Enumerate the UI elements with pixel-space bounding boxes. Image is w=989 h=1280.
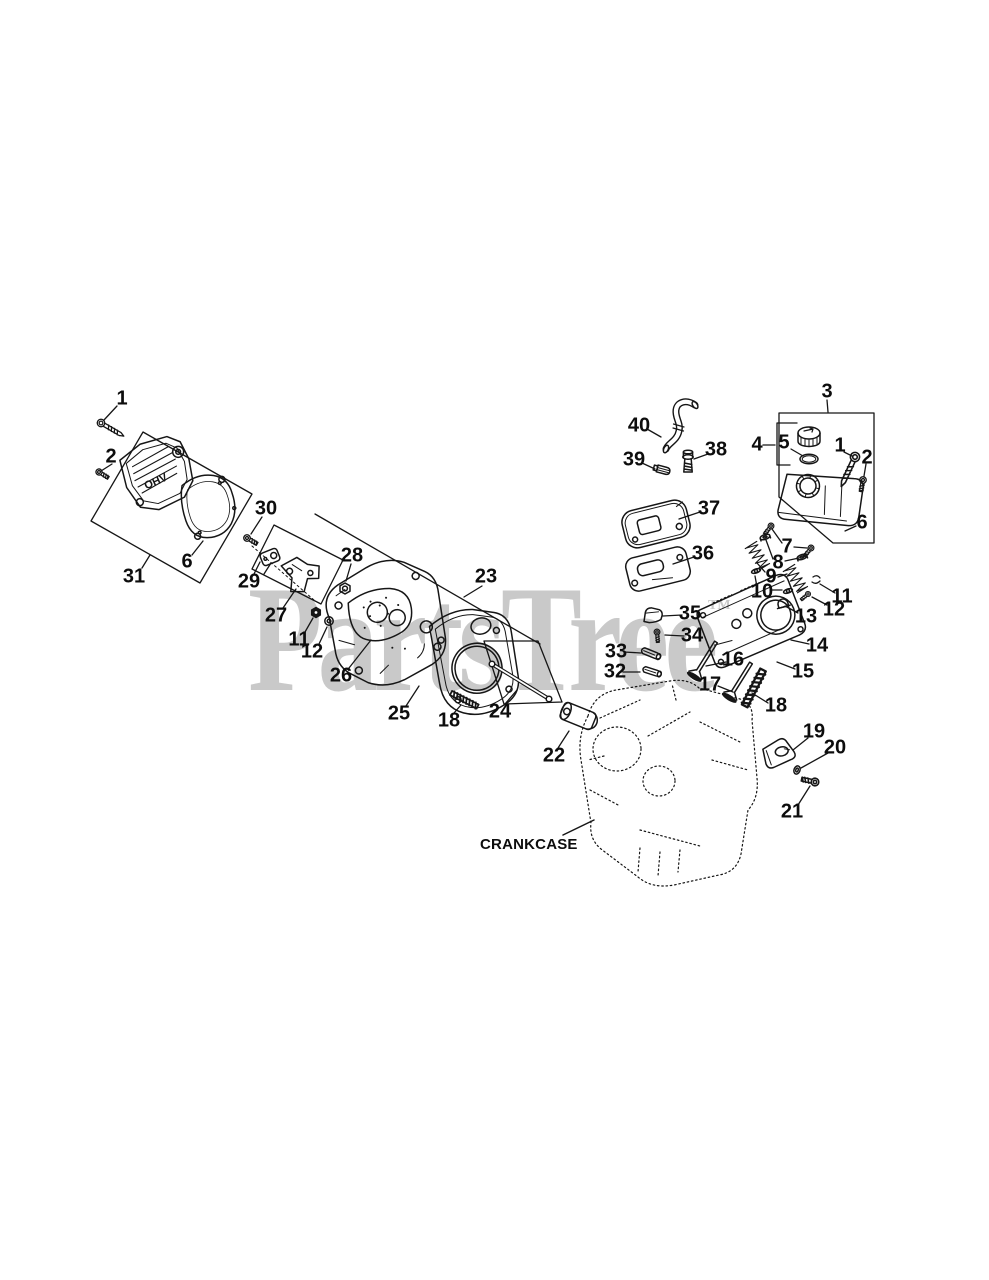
part-callout-18: 18 [438,710,460,733]
part-callout-13: 13 [795,606,817,629]
part-callout-24: 24 [489,701,511,724]
part-callout-10: 10 [751,581,773,604]
part-callout-26: 26 [330,665,352,688]
part-callout-36: 36 [692,543,714,566]
part-callout-25: 25 [388,703,410,726]
part-callout-3: 3 [821,381,832,404]
callout-labels: 1231630292728111226232518242240393834512… [0,0,989,1280]
part-callout-2: 2 [861,447,872,470]
part-callout-35: 35 [679,603,701,626]
part-callout-40: 40 [628,415,650,438]
part-callout-32: 32 [604,661,626,684]
part-callout-16: 16 [722,649,744,672]
part-callout-33: 33 [605,641,627,664]
part-callout-17: 17 [699,674,721,697]
part-callout-38: 38 [705,439,727,462]
part-callout-18: 18 [765,695,787,718]
part-callout-6: 6 [181,551,192,574]
part-callout-39: 39 [623,449,645,472]
part-callout-23: 23 [475,566,497,589]
part-callout-31: 31 [123,566,145,589]
part-callout-2: 2 [105,446,116,469]
part-callout-12: 12 [301,641,323,664]
part-callout-1: 1 [834,435,845,458]
part-callout-19: 19 [803,721,825,744]
parts-diagram-page: PartsTree TM [0,0,989,1280]
part-callout-5: 5 [778,432,789,455]
part-callout-30: 30 [255,498,277,521]
part-callout-29: 29 [238,571,260,594]
part-callout-4: 4 [751,434,762,457]
part-callout-27: 27 [265,605,287,628]
part-callout-22: 22 [543,745,565,768]
part-callout-21: 21 [781,801,803,824]
part-callout-14: 14 [806,635,828,658]
part-callout-34: 34 [681,625,703,648]
part-callout-37: 37 [698,498,720,521]
part-callout-12: 12 [823,599,845,622]
part-callout-6: 6 [856,512,867,535]
crankcase-label: CRANKCASE [480,836,578,853]
part-callout-20: 20 [824,737,846,760]
part-callout-15: 15 [792,661,814,684]
part-callout-28: 28 [341,545,363,568]
part-callout-1: 1 [116,388,127,411]
